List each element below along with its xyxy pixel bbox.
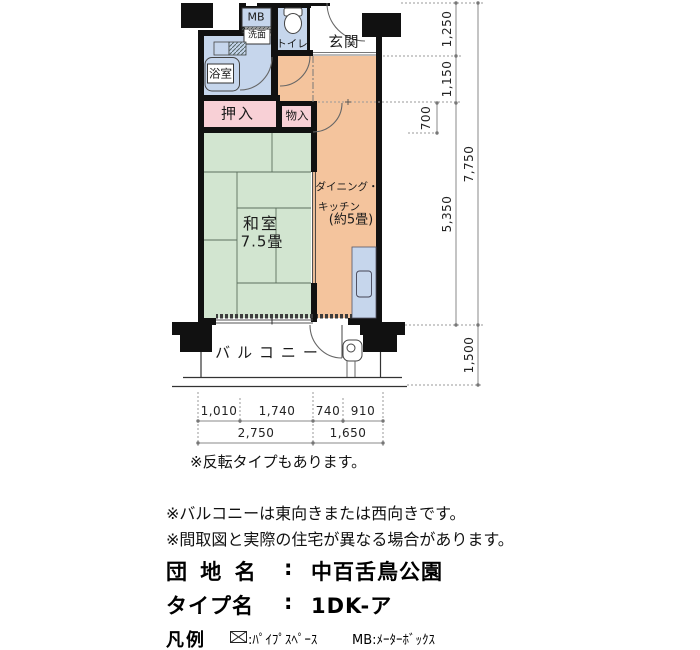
dk-window-sill: [317, 314, 352, 319]
closet-label: 押入: [221, 107, 255, 122]
plan-linework: [0, 0, 700, 650]
dk-door-arc: [313, 103, 342, 132]
pillar-bottom-right: [360, 322, 405, 335]
dim-1010: 1,010: [201, 405, 238, 417]
toilet-bowl-icon: [285, 14, 302, 34]
legend-pipe-space: :ﾊﾟｲﾌﾟｽﾍﾟｰｽ: [248, 629, 317, 648]
type-name-label: タイプ名: [166, 590, 254, 620]
type-name-separator: :: [284, 590, 292, 614]
tatami-name-label: 和室: [243, 216, 279, 232]
dim-2750: 2,750: [238, 427, 275, 439]
laundry-box: [214, 42, 229, 55]
pillar-top-right: [362, 13, 401, 37]
estate-name-value: 中百舌鳥公園: [311, 556, 443, 586]
dim-1650: 1,650: [330, 427, 367, 439]
washroom-door-arc: [240, 57, 272, 90]
estate-name-separator: :: [284, 556, 292, 580]
tatami-size-label: 7.5畳: [241, 235, 284, 250]
dk-label-line2: キッチン: [318, 202, 360, 213]
entrance-label: 玄関: [329, 36, 360, 51]
pillar-bottom-left: [172, 322, 212, 335]
balcony-label: バルコニー: [215, 346, 325, 361]
dim-910: 910: [351, 405, 375, 417]
dim-5350: 5,350: [441, 196, 453, 233]
dk-label-line3: (約5畳): [329, 214, 373, 227]
tatami-window-sill: [216, 314, 313, 319]
dim-700: 700: [420, 106, 432, 130]
note-balcony-direction: ※バルコニーは東向きまたは西向きです。: [166, 500, 466, 524]
dim-cross-marker: [345, 99, 351, 105]
bath-label: 浴室: [209, 68, 232, 80]
note-plan-difference: ※間取図と実際の住宅が異なる場合があります。: [166, 526, 514, 550]
laundry-hatch: [229, 42, 246, 55]
legend-label: 凡例: [166, 626, 206, 650]
pipe-space-icon: [230, 631, 247, 643]
mb-top-opening: [246, 3, 257, 6]
pillar-top-left: [181, 3, 213, 28]
toilet-door-arc: [280, 56, 310, 86]
type-name-value: 1DK-ア: [311, 590, 392, 620]
estate-name-label: 団 地 名: [166, 556, 259, 586]
dim-1150: 1,150: [441, 61, 453, 98]
wall-left: [198, 30, 204, 322]
floor-plan-page: MB 洗面 トイレ 玄関 浴室 押入 物入 和室 7.5畳 ダイニング・ キッチ…: [0, 0, 700, 650]
dk-label-line1: ダイニング・: [316, 182, 379, 193]
window-glass-lines: [216, 320, 313, 323]
kitchen-counter: [352, 247, 376, 318]
entrance-step-line: [313, 53, 376, 56]
storage-label: 物入: [286, 110, 309, 122]
toilet-label: トイレ: [276, 39, 308, 50]
legend-row: 凡例 :ﾊﾟｲﾌﾟｽﾍﾟｰｽ MB:ﾒｰﾀｰﾎﾞｯｸｽ: [0, 625, 700, 650]
dim-1740: 1,740: [259, 405, 296, 417]
note-reverse-type: ※反転タイプもあります。: [190, 451, 366, 472]
mb-label: MB: [247, 12, 264, 23]
dim-7750: 7,750: [463, 146, 475, 183]
legend-meter-box: MB:ﾒｰﾀｰﾎﾞｯｸｽ: [352, 629, 435, 648]
washbasin-label: 洗面: [248, 32, 266, 41]
dim-740: 740: [316, 405, 340, 417]
dim-1500: 1,500: [463, 337, 475, 374]
dim-1250: 1,250: [441, 11, 453, 48]
